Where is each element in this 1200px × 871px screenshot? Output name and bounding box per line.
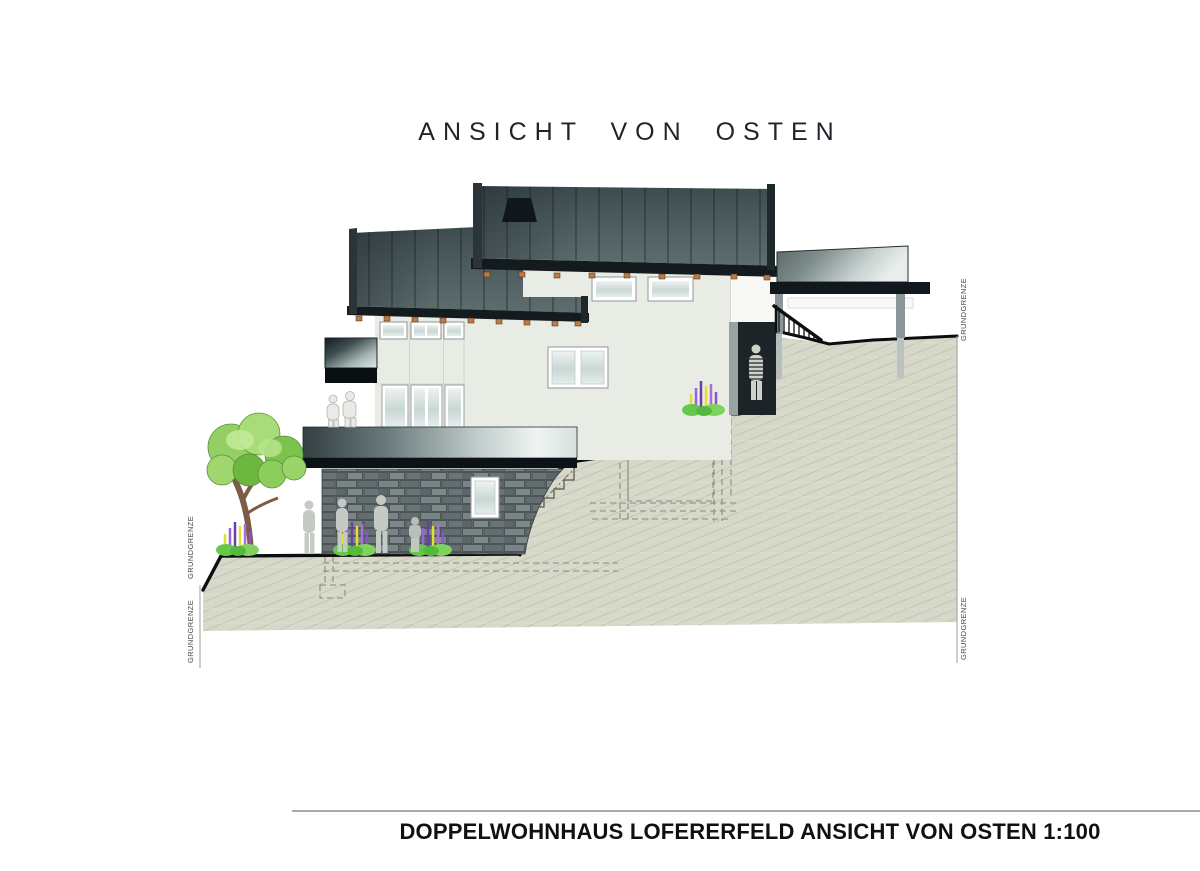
boundary-label-right-lower: GRUNDGRENZE xyxy=(959,613,968,660)
drawing-title: ANSICHT VON OSTEN xyxy=(340,118,920,147)
boundary-label-left-upper: GRUNDGRENZE xyxy=(186,532,195,579)
boundary-label-left-lower: GRUNDGRENZE xyxy=(186,616,195,663)
person-terrace-2 xyxy=(343,392,356,428)
double-casement-window xyxy=(548,347,608,388)
pergola-rear-rail xyxy=(788,298,913,308)
terrace-canopy xyxy=(303,427,577,468)
deciduous-tree xyxy=(207,413,306,554)
terrace-glass-doors xyxy=(382,385,464,427)
elevation-sheet: ANSICHT VON OSTEN GRUNDGRENZE GRUNDGRENZ… xyxy=(0,0,1200,871)
person-terrace-1 xyxy=(327,395,339,427)
boundary-label-right-upper: GRUNDGRENZE xyxy=(959,289,968,341)
chimney xyxy=(502,198,537,222)
pergola-post-right xyxy=(896,294,905,338)
projecting-glass-box xyxy=(325,338,377,383)
side-wall-strip xyxy=(731,274,776,322)
entry-passage xyxy=(729,322,776,415)
clerestory-windows xyxy=(380,322,464,339)
main-shed-roof xyxy=(471,183,780,280)
pergola-beam xyxy=(770,282,930,294)
pergola-glass-panel xyxy=(777,246,908,282)
sheet-title: DOPPELWOHNHAUS LOFERERFELD ANSICHT VON O… xyxy=(300,819,1200,845)
person-garden-1 xyxy=(303,501,315,555)
title-block-divider xyxy=(292,810,1200,812)
